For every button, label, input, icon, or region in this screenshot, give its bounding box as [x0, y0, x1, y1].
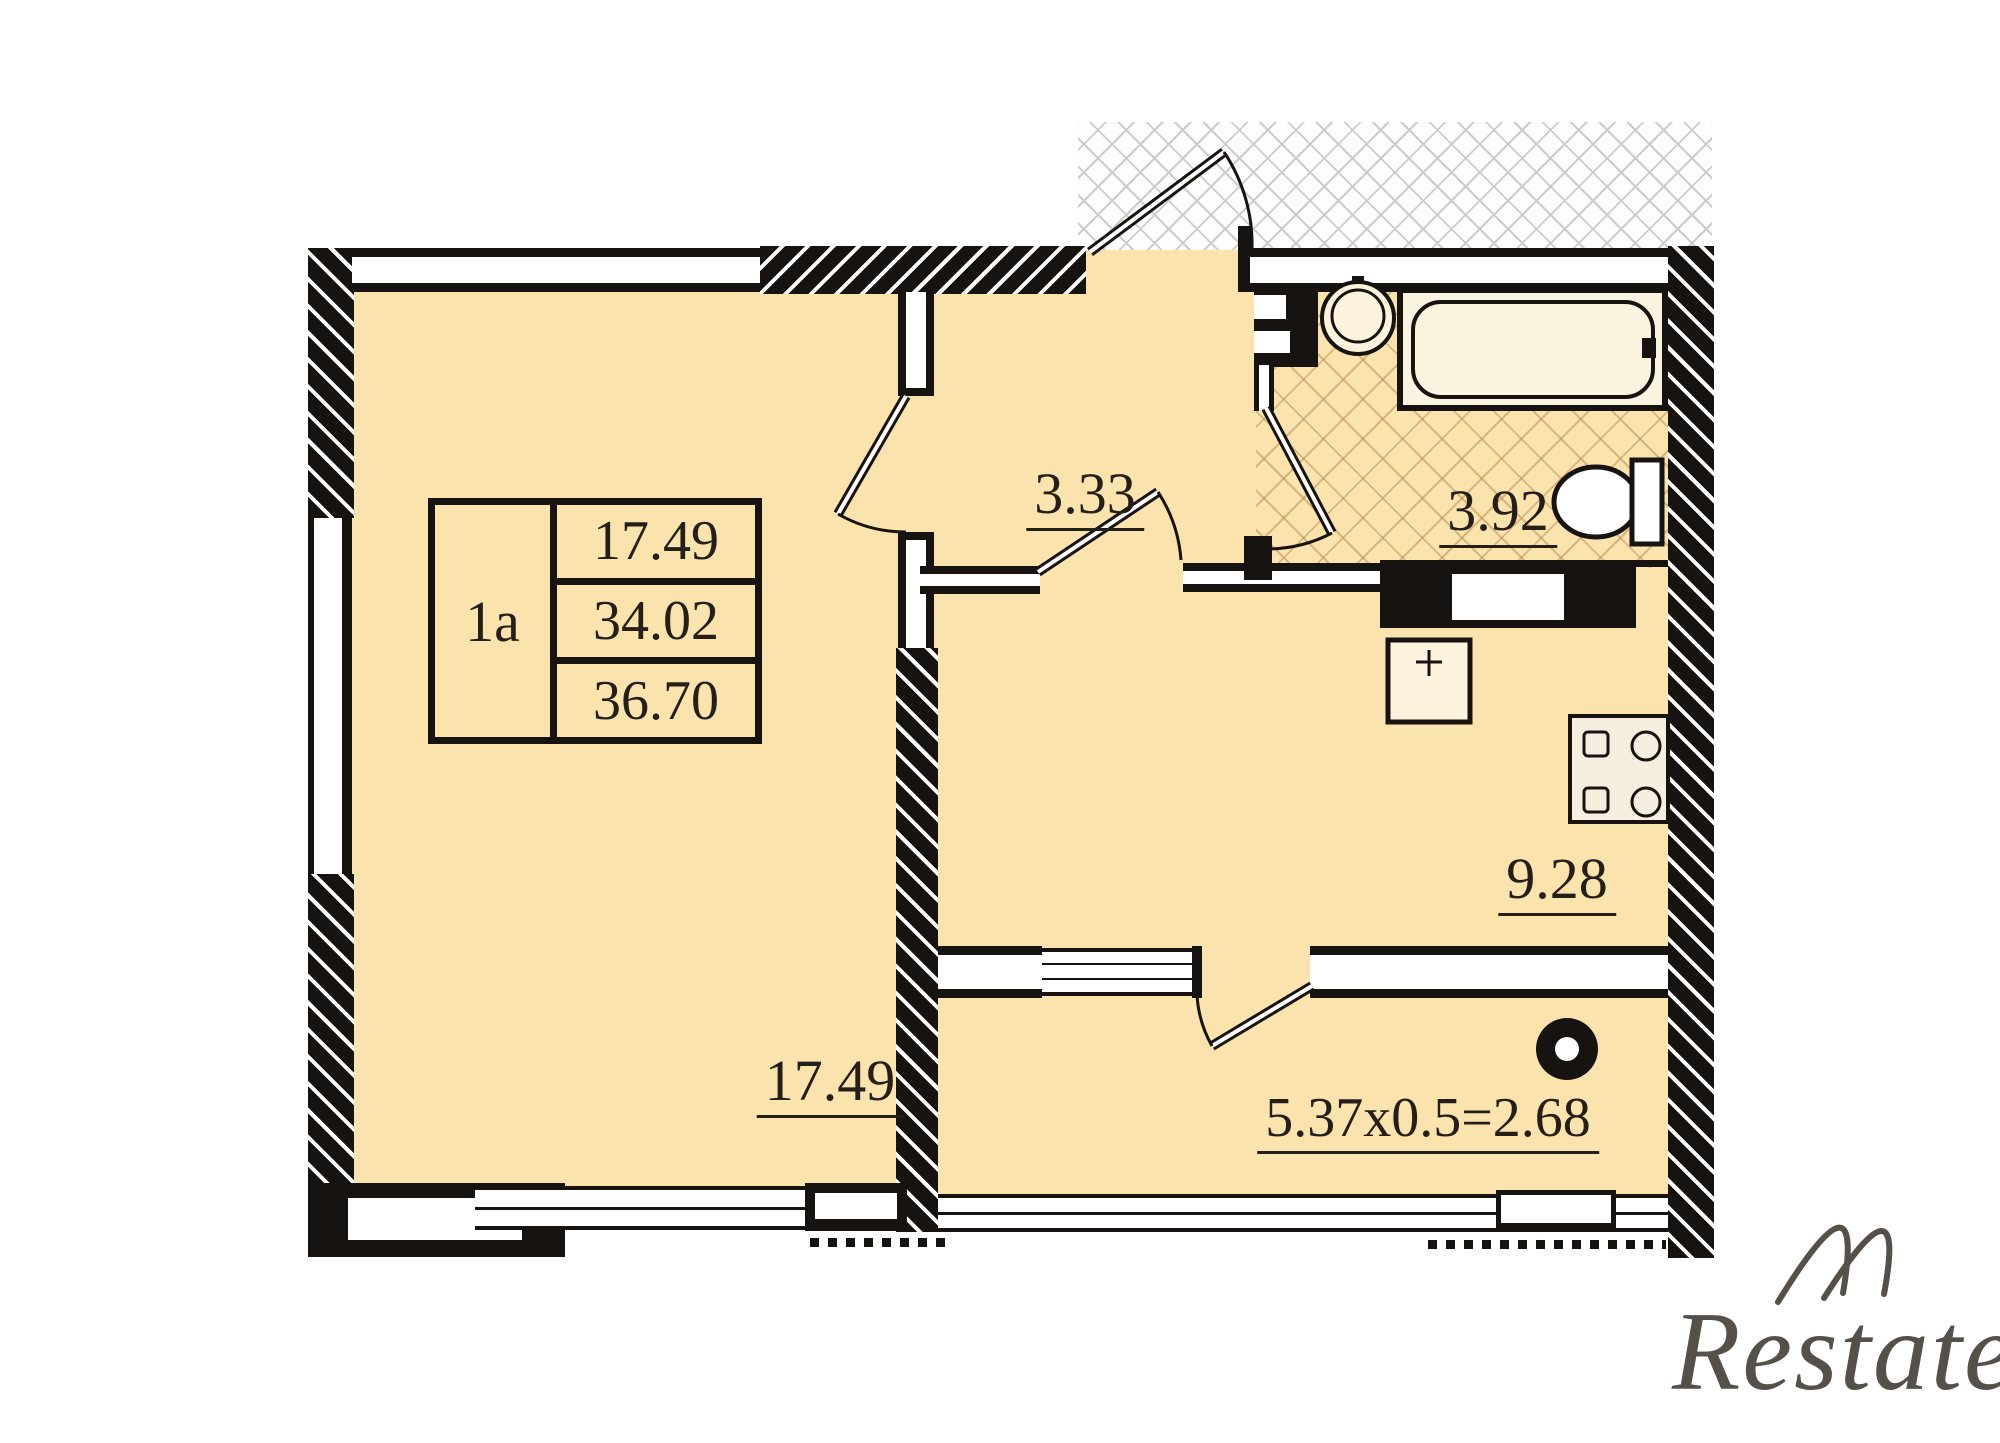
entry-door-arc	[1224, 152, 1252, 250]
bathtub-icon	[1400, 290, 1665, 408]
info-table-value-2: 34.02	[557, 585, 755, 665]
sink-icon	[1322, 276, 1394, 354]
balcony-door	[1197, 986, 1312, 1046]
info-table: 1a 17.49 34.02 36.70	[428, 498, 762, 744]
bathroom-door	[1266, 408, 1332, 549]
kitchen-sink-icon	[1388, 640, 1470, 722]
fixtures-layer	[0, 0, 2000, 1443]
watermark-logo: Restate	[1672, 1296, 2000, 1408]
balcony-ring-icon	[1536, 1018, 1598, 1080]
living-room-door	[838, 396, 906, 532]
entry-door	[1090, 152, 1252, 252]
floor-plan: 1a 17.49 34.02 36.70 3.33 3.92 9.28 17.4…	[0, 0, 2000, 1443]
toilet-icon	[1554, 460, 1662, 544]
label-living-area: 17.49	[757, 1052, 904, 1118]
label-hall-area: 3.33	[1026, 465, 1144, 531]
info-table-value-1: 17.49	[557, 505, 755, 585]
info-table-unit: 1a	[435, 505, 557, 737]
label-kitchen-area: 9.28	[1498, 850, 1616, 916]
label-bathroom-area: 3.92	[1439, 482, 1557, 548]
info-table-value-3: 36.70	[557, 664, 755, 737]
label-balcony-area: 5.37x0.5=2.68	[1257, 1090, 1599, 1154]
stove-icon	[1570, 716, 1668, 822]
